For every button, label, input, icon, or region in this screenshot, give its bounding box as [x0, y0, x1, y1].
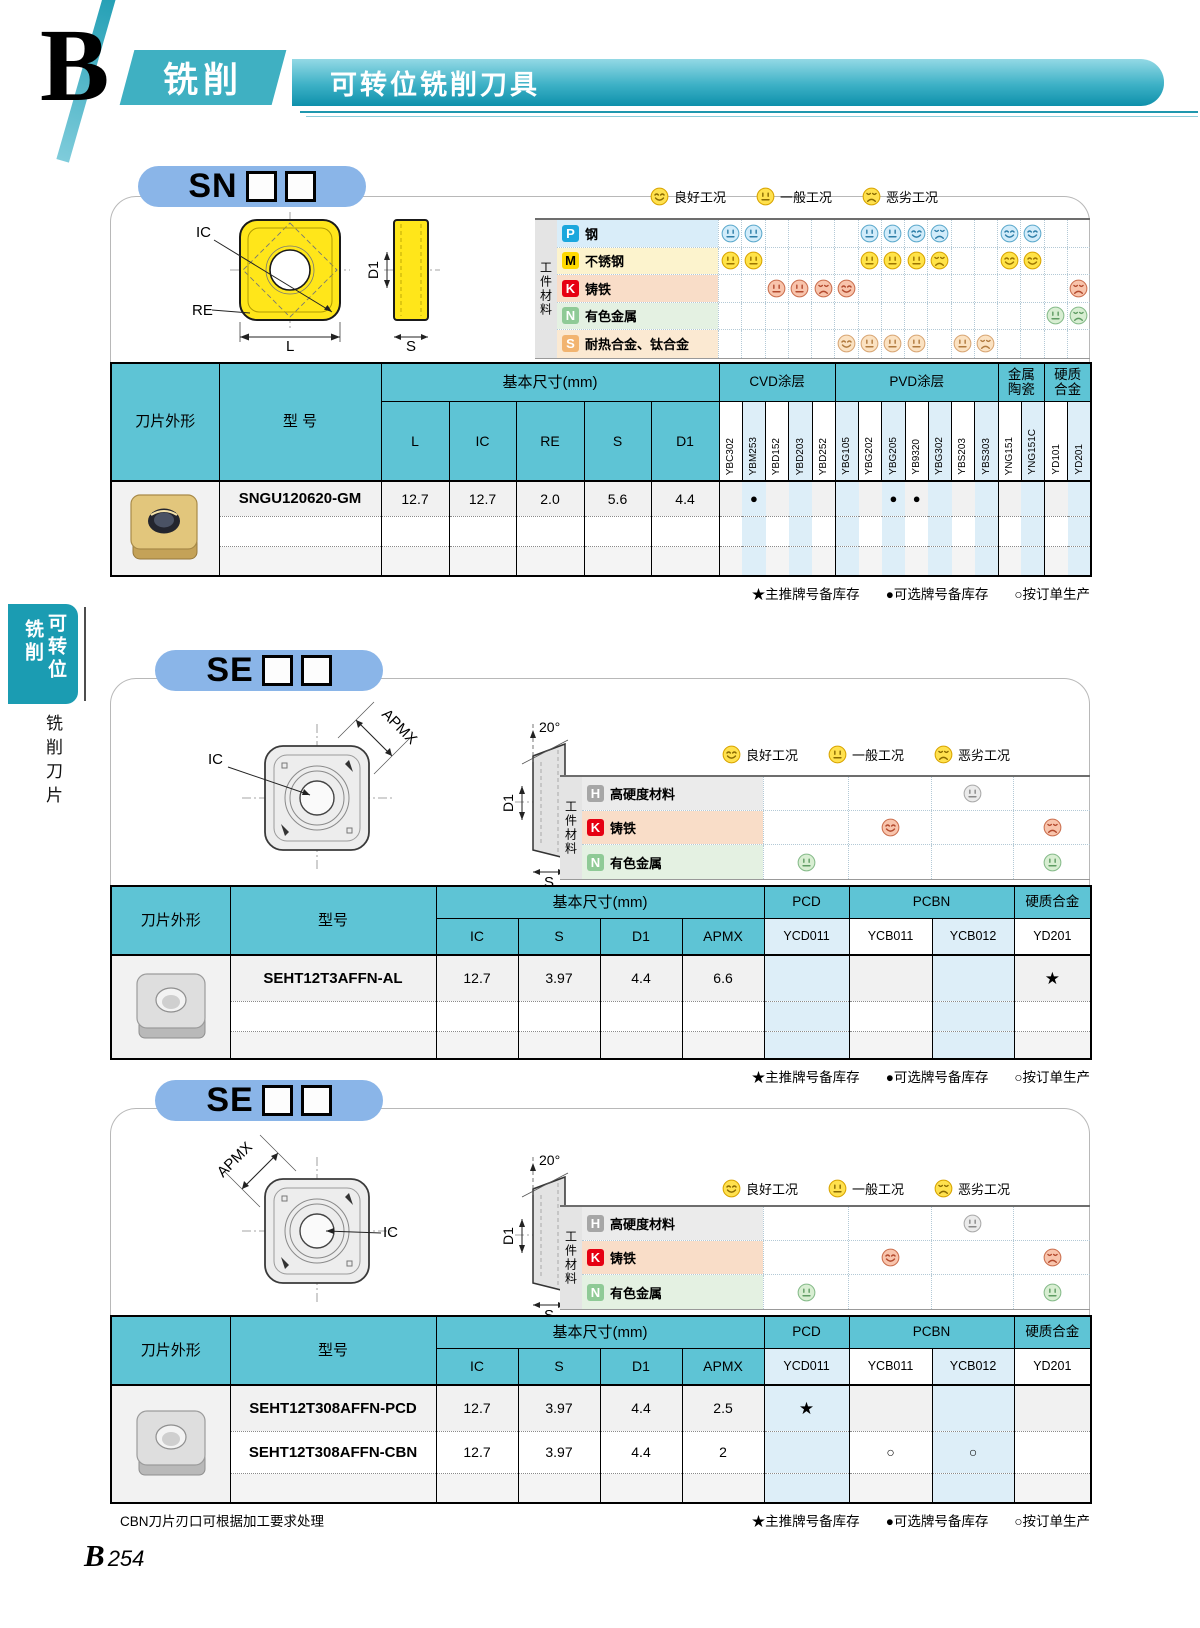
- material-row-K: K铸铁: [582, 1241, 1090, 1275]
- grade-mark-cell: [849, 1001, 932, 1031]
- svg-text:D1: D1: [500, 794, 516, 812]
- legend-label: 恶劣工况: [958, 1179, 1010, 1198]
- legend-item-fair: 一般工况: [828, 1179, 904, 1198]
- grade-mark-cell: [849, 1473, 932, 1503]
- rating-cell: [718, 248, 741, 275]
- rating-cell: [765, 275, 788, 302]
- dim-cell: [436, 1001, 518, 1031]
- legend-item-good: 良好工况: [722, 1179, 798, 1198]
- material-name: 铸铁: [610, 818, 636, 837]
- material-badge-K: K: [587, 1249, 604, 1266]
- grade-header: YCD011: [764, 1348, 849, 1385]
- rating-cell: [741, 248, 764, 275]
- rating-cell: [763, 777, 848, 810]
- series-code: SN: [188, 167, 237, 206]
- page-title: 可转位铣削刀具: [292, 63, 540, 102]
- insert-photo: [129, 966, 213, 1046]
- dim-cell: 3.97: [518, 1385, 600, 1431]
- grade-mark-cell: [835, 481, 858, 516]
- rating-cell: [1044, 248, 1067, 275]
- rating-cell: [1020, 303, 1043, 330]
- catalog-page: B 铣削 可转位铣削刀具 可转位 铣削 铣削刀片 SNICRELD1S良好工况一…: [0, 0, 1200, 1628]
- grade-mark-cell: [1014, 1431, 1091, 1473]
- grade-mark-cell: [789, 516, 812, 546]
- dim-cell: 2.0: [516, 481, 584, 516]
- grade-group-header: 金属 陶瓷: [998, 363, 1045, 401]
- grade-mark-cell: [952, 516, 975, 546]
- rating-face-fair: [907, 251, 926, 270]
- rating-face-good: [881, 1248, 900, 1267]
- rating-face-poor: [930, 224, 949, 243]
- stock-legend-item-1: ●可选牌号备库存: [886, 583, 989, 603]
- grade-mark-cell: [859, 546, 882, 576]
- rating-cell: [931, 1207, 1013, 1240]
- rating-face-fair: [860, 251, 879, 270]
- grade-mark-cell: ○: [849, 1431, 932, 1473]
- dim-cell: [651, 546, 719, 576]
- dim-header: RE: [516, 401, 584, 481]
- dim-cell: [449, 516, 516, 546]
- rating-cell: [931, 845, 1013, 879]
- insert-photo: [129, 1403, 213, 1483]
- grade-mark-cell: [1021, 481, 1044, 516]
- rating-cell: [997, 303, 1020, 330]
- material-row-K: K铸铁: [557, 275, 1090, 303]
- legend-item-good: 良好工况: [650, 187, 726, 206]
- material-row-K: K铸铁: [582, 811, 1090, 845]
- page-number: B254: [84, 1538, 144, 1574]
- grade-group-header: PCD: [764, 1316, 849, 1348]
- grade-header: YBG302: [928, 401, 951, 481]
- material-label: N有色金属: [557, 303, 718, 330]
- rating-cell: [858, 275, 881, 302]
- legend-label: 一般工况: [780, 187, 832, 206]
- rating-face-good: [881, 818, 900, 837]
- rating-cell: [927, 275, 950, 302]
- rating-face-poor: [934, 745, 953, 764]
- dim-header: D1: [600, 1348, 682, 1385]
- grade-mark-cell: [835, 516, 858, 546]
- material-name: 高硬度材料: [610, 1214, 675, 1233]
- grade-mark-cell: [1068, 481, 1091, 516]
- rating-face-fair: [721, 224, 740, 243]
- stock-legend-item-0: ★主推牌号备库存: [752, 1510, 860, 1530]
- dim-cell: [584, 546, 651, 576]
- rating-cell: [765, 248, 788, 275]
- material-badge-H: H: [587, 785, 604, 802]
- grade-mark-cell: [928, 481, 951, 516]
- dim-cell: 12.7: [436, 1431, 518, 1473]
- grade-header: YBG105: [835, 401, 858, 481]
- material-row-S: S耐热合金、钛合金: [557, 330, 1090, 358]
- stock-legend-item-1: ●可选牌号备库存: [886, 1510, 989, 1530]
- rating-cell: [951, 275, 974, 302]
- material-row-P: P钢: [557, 220, 1090, 248]
- rating-cell: [788, 303, 811, 330]
- grade-mark-cell: [859, 481, 882, 516]
- series-code: SE: [206, 651, 253, 690]
- grade-mark-cell: [849, 1031, 932, 1059]
- grade-mark-cell: [766, 516, 789, 546]
- dim-header: S: [584, 401, 651, 481]
- rating-cell: [848, 811, 931, 844]
- material-badge-N: N: [587, 854, 604, 871]
- rating-face-poor: [930, 251, 949, 270]
- condition-legend: 良好工况一般工况恶劣工况: [722, 1179, 1010, 1198]
- rating-face-fair: [828, 745, 847, 764]
- sidebar-rule: [84, 607, 86, 701]
- grade-mark-cell: [835, 546, 858, 576]
- rating-face-poor: [1069, 279, 1088, 298]
- rating-face-fair: [963, 784, 982, 803]
- shape-column-header: 刀片外形: [111, 363, 219, 481]
- rating-face-fair: [1043, 853, 1062, 872]
- material-badge-M: M: [562, 252, 579, 269]
- grade-header: YD201: [1068, 401, 1091, 481]
- insert-drawing-sn: ICRELD1S: [188, 210, 468, 352]
- rating-cell: [718, 303, 741, 330]
- rating-face-fair: [744, 251, 763, 270]
- rating-cell: [763, 811, 848, 844]
- dim-header: D1: [600, 918, 682, 955]
- series-placeholder-box: [301, 1085, 332, 1116]
- rating-cell: [881, 330, 904, 358]
- grade-group-header: CVD涂层: [719, 363, 835, 401]
- rating-face-fair: [1046, 306, 1065, 325]
- dim-cell: 12.7: [436, 955, 518, 1001]
- rating-face-good: [650, 187, 669, 206]
- grade-mark-cell: [952, 546, 975, 576]
- material-label: K铸铁: [557, 275, 718, 302]
- dim-cell: [600, 1031, 682, 1059]
- legend-label: 一般工况: [852, 745, 904, 764]
- rating-face-fair: [907, 334, 926, 353]
- grade-mark-cell: [812, 481, 835, 516]
- rating-cell: [834, 275, 857, 302]
- rating-cell: [951, 220, 974, 247]
- grade-mark-cell: [932, 1001, 1014, 1031]
- rating-cell: [1044, 330, 1067, 358]
- rating-cell: [1020, 330, 1043, 358]
- dim-header: D1: [651, 401, 719, 481]
- table-row: [111, 516, 1091, 546]
- grade-mark-cell: [975, 481, 998, 516]
- grade-mark-cell: [928, 516, 951, 546]
- rating-cell: [763, 845, 848, 879]
- material-label: M不锈钢: [557, 248, 718, 275]
- rating-face-fair: [721, 251, 740, 270]
- rating-cell: [858, 303, 881, 330]
- grade-mark-cell: [932, 1031, 1014, 1059]
- material-axis-text: 工件材料: [538, 261, 555, 317]
- model-column-header: 型 号: [219, 363, 381, 481]
- rating-cell: [997, 275, 1020, 302]
- grade-mark-cell: [719, 516, 742, 546]
- grade-mark-cell: [764, 1473, 849, 1503]
- rating-face-fair: [744, 224, 763, 243]
- table-row: [111, 1001, 1091, 1031]
- series-pill: SE: [155, 1080, 383, 1121]
- rating-face-fair: [860, 224, 879, 243]
- rating-face-fair: [828, 1179, 847, 1198]
- grade-mark-cell: [975, 546, 998, 576]
- rating-face-fair: [767, 279, 786, 298]
- grade-mark-cell: [766, 481, 789, 516]
- dim-header: IC: [449, 401, 516, 481]
- material-row-H: H高硬度材料: [582, 1207, 1090, 1241]
- rating-cell: [1067, 330, 1090, 358]
- rating-cell: [834, 330, 857, 358]
- legend-label: 良好工况: [674, 187, 726, 206]
- table-row: SEHT12T308AFFN-PCD12.73.974.42.5★: [111, 1385, 1091, 1431]
- table-row: [111, 546, 1091, 576]
- grade-mark-cell: [1068, 516, 1091, 546]
- grade-mark-cell: [1045, 481, 1068, 516]
- rating-cell: [1044, 303, 1067, 330]
- grade-header: YCB012: [932, 1348, 1014, 1385]
- grade-mark-cell: [882, 516, 905, 546]
- rating-cell: [741, 220, 764, 247]
- grade-mark-cell: [764, 1431, 849, 1473]
- material-badge-S: S: [562, 335, 579, 352]
- grade-header: YCB011: [849, 918, 932, 955]
- condition-legend: 良好工况一般工况恶劣工况: [722, 745, 1010, 764]
- shape-column-header: 刀片外形: [111, 1316, 230, 1385]
- svg-text:RE: RE: [192, 302, 213, 319]
- series-placeholder-box: [301, 655, 332, 686]
- legend-label: 一般工况: [852, 1179, 904, 1198]
- svg-text:D1: D1: [365, 261, 381, 279]
- stock-legend: ★主推牌号备库存●可选牌号备库存○按订单生产: [110, 583, 1090, 603]
- dims-group-header: 基本尺寸(mm): [381, 363, 719, 401]
- grade-header: YBS203: [952, 401, 975, 481]
- spec-table: 刀片外形型号基本尺寸(mm)PCDPCBN硬质合金ICSD1APMXYCD011…: [110, 885, 1092, 1060]
- dim-cell: [600, 1473, 682, 1503]
- stock-legend: CBN刀片刃口可根据加工要求处理★主推牌号备库存●可选牌号备库存○按订单生产: [110, 1510, 1090, 1530]
- rating-cell: [1013, 1275, 1090, 1309]
- grade-header: YBG205: [882, 401, 905, 481]
- grade-mark-cell: [905, 516, 928, 546]
- grade-group-header: 硬质合金: [1014, 886, 1091, 918]
- material-label: K铸铁: [582, 1241, 763, 1274]
- grade-header: YBM253: [742, 401, 765, 481]
- material-name: 铸铁: [585, 279, 611, 298]
- grade-mark-cell: [859, 516, 882, 546]
- grade-header: YD201: [1014, 1348, 1091, 1385]
- rating-cell: [788, 275, 811, 302]
- grade-group-header: PVD涂层: [835, 363, 998, 401]
- material-name: 钢: [585, 224, 598, 243]
- svg-text:S: S: [406, 338, 416, 352]
- page-title-banner: 可转位铣削刀具: [292, 59, 1164, 106]
- grade-mark-cell: [719, 546, 742, 576]
- dim-header: APMX: [682, 1348, 764, 1385]
- grade-mark-cell: [1068, 546, 1091, 576]
- dim-cell: [518, 1001, 600, 1031]
- grade-mark-cell: [812, 546, 835, 576]
- rating-face-fair: [883, 224, 902, 243]
- rating-face-good: [1023, 251, 1042, 270]
- stock-legend-item-2: ○按订单生产: [1014, 1510, 1090, 1530]
- rating-face-fair: [883, 251, 902, 270]
- dim-cell: 2: [682, 1431, 764, 1473]
- rating-cell: [765, 303, 788, 330]
- rating-cell: [904, 275, 927, 302]
- material-axis-text: 工件材料: [563, 1230, 580, 1286]
- dim-cell: 3.97: [518, 955, 600, 1001]
- svg-text:20°: 20°: [539, 1152, 560, 1168]
- svg-text:APMX: APMX: [378, 706, 420, 748]
- dim-header: L: [381, 401, 449, 481]
- rating-cell: [1067, 220, 1090, 247]
- dim-cell: [682, 1001, 764, 1031]
- grade-mark-cell: [766, 546, 789, 576]
- series-pill: SN: [138, 166, 366, 207]
- grade-mark-cell: [1045, 516, 1068, 546]
- rating-face-fair: [797, 853, 816, 872]
- table-row: SEHT12T3AFFN-AL12.73.974.46.6★: [111, 955, 1091, 1001]
- dim-cell: 2.5: [682, 1385, 764, 1431]
- legend-label: 良好工况: [746, 1179, 798, 1198]
- model-column-header: 型号: [230, 1316, 436, 1385]
- rating-cell: [904, 220, 927, 247]
- rating-face-fair: [797, 1283, 816, 1302]
- rating-cell: [811, 248, 834, 275]
- grade-mark-cell: [952, 481, 975, 516]
- grade-mark-cell: [1045, 546, 1068, 576]
- rating-cell: [848, 777, 931, 810]
- material-name: 有色金属: [610, 1283, 662, 1302]
- material-name: 有色金属: [610, 853, 662, 872]
- grade-header: YBD152: [766, 401, 789, 481]
- material-name: 高硬度材料: [610, 784, 675, 803]
- grade-mark-cell: [928, 546, 951, 576]
- rating-cell: [997, 220, 1020, 247]
- dim-cell: [436, 1031, 518, 1059]
- material-name: 有色金属: [585, 306, 637, 325]
- rating-face-fair: [953, 334, 972, 353]
- material-name: 铸铁: [610, 1248, 636, 1267]
- dim-cell: 3.97: [518, 1431, 600, 1473]
- rating-face-fair: [1043, 1283, 1062, 1302]
- rating-face-good: [837, 334, 856, 353]
- grade-header: YBD252: [812, 401, 835, 481]
- grade-header: YD201: [1014, 918, 1091, 955]
- table-row: SEHT12T308AFFN-CBN12.73.974.42○○: [111, 1431, 1091, 1473]
- rating-cell: [927, 303, 950, 330]
- diagram-area: APMXIC20°D1S: [170, 1133, 590, 1328]
- rating-cell: [741, 303, 764, 330]
- grade-group-header: PCBN: [849, 886, 1014, 918]
- grade-mark-cell: [1014, 1001, 1091, 1031]
- material-axis-label: 工件材料: [560, 1207, 582, 1309]
- svg-text:IC: IC: [383, 1224, 398, 1241]
- legend-label: 良好工况: [746, 745, 798, 764]
- rating-cell: [811, 220, 834, 247]
- rating-cell: [881, 248, 904, 275]
- table-row: [111, 1031, 1091, 1059]
- rating-cell: [718, 275, 741, 302]
- grade-header: YBS303: [975, 401, 998, 481]
- grade-mark-cell: ★: [764, 1385, 849, 1431]
- grade-mark-cell: [932, 1473, 1014, 1503]
- rating-cell: [858, 220, 881, 247]
- grade-group-header: 硬质合金: [1014, 1316, 1091, 1348]
- dim-cell: [516, 516, 584, 546]
- material-name: 不锈钢: [585, 251, 624, 270]
- grade-mark-cell: [975, 516, 998, 546]
- legend-item-poor: 恶劣工况: [934, 1179, 1010, 1198]
- rating-cell: [927, 220, 950, 247]
- material-label: P钢: [557, 220, 718, 247]
- grade-header: YBD203: [789, 401, 812, 481]
- material-row-N: N有色金属: [582, 1275, 1090, 1309]
- dim-cell: 4.4: [600, 1431, 682, 1473]
- rating-face-poor: [814, 279, 833, 298]
- material-row-N: N有色金属: [582, 845, 1090, 879]
- grade-header: YBC302: [719, 401, 742, 481]
- header-rule-2: [306, 116, 1198, 117]
- rating-cell: [997, 248, 1020, 275]
- rating-face-poor: [1069, 306, 1088, 325]
- dim-cell: 5.6: [584, 481, 651, 516]
- rating-cell: [1067, 275, 1090, 302]
- grade-mark-cell: [719, 481, 742, 516]
- grade-mark-cell: [849, 1385, 932, 1431]
- material-name: 耐热合金、钛合金: [585, 334, 689, 353]
- material-row-N: N有色金属: [557, 303, 1090, 331]
- insert-drawing-se: APMXIC20°D1S: [170, 700, 590, 890]
- rating-face-good: [722, 1179, 741, 1198]
- model-cell: SEHT12T308AFFN-PCD: [230, 1385, 436, 1431]
- rating-face-good: [1000, 251, 1019, 270]
- grade-mark-cell: [742, 546, 765, 576]
- grade-header: YNG151C: [1021, 401, 1044, 481]
- rating-cell: [765, 330, 788, 358]
- rating-cell: [904, 303, 927, 330]
- svg-text:L: L: [286, 338, 294, 352]
- grade-mark-cell: ○: [932, 1431, 1014, 1473]
- model-cell: [219, 546, 381, 576]
- grade-mark-cell: [849, 955, 932, 1001]
- rating-cell: [763, 1207, 848, 1240]
- model-column-header: 型号: [230, 886, 436, 955]
- dim-cell: 6.6: [682, 955, 764, 1001]
- grade-mark-cell: [789, 481, 812, 516]
- svg-text:IC: IC: [196, 224, 211, 241]
- rating-cell: [974, 330, 997, 358]
- diagram-area: APMXIC20°D1S: [170, 700, 590, 895]
- rating-cell: [881, 220, 904, 247]
- grade-mark-cell: [1021, 546, 1044, 576]
- series-pill: SE: [155, 650, 383, 691]
- rating-face-good: [722, 745, 741, 764]
- section-3-se: SEAPMXIC20°D1S良好工况一般工况恶劣工况工件材料H高硬度材料K铸铁N…: [110, 1075, 1090, 1525]
- rating-cell: [904, 330, 927, 358]
- series-placeholder-box: [285, 171, 316, 202]
- legend-item-fair: 一般工况: [756, 187, 832, 206]
- category-tab: 铣削: [120, 50, 287, 105]
- work-material-table: 工件材料P钢M不锈钢K铸铁N有色金属S耐热合金、钛合金: [535, 218, 1090, 359]
- shape-column-header: 刀片外形: [111, 886, 230, 955]
- insert-photo-cell: [111, 955, 230, 1059]
- header-rule-1: [300, 111, 1198, 113]
- dim-cell: [516, 546, 584, 576]
- dim-header: S: [518, 1348, 600, 1385]
- legend-item-poor: 恶劣工况: [934, 745, 1010, 764]
- rating-cell: [881, 303, 904, 330]
- rating-face-fair: [860, 334, 879, 353]
